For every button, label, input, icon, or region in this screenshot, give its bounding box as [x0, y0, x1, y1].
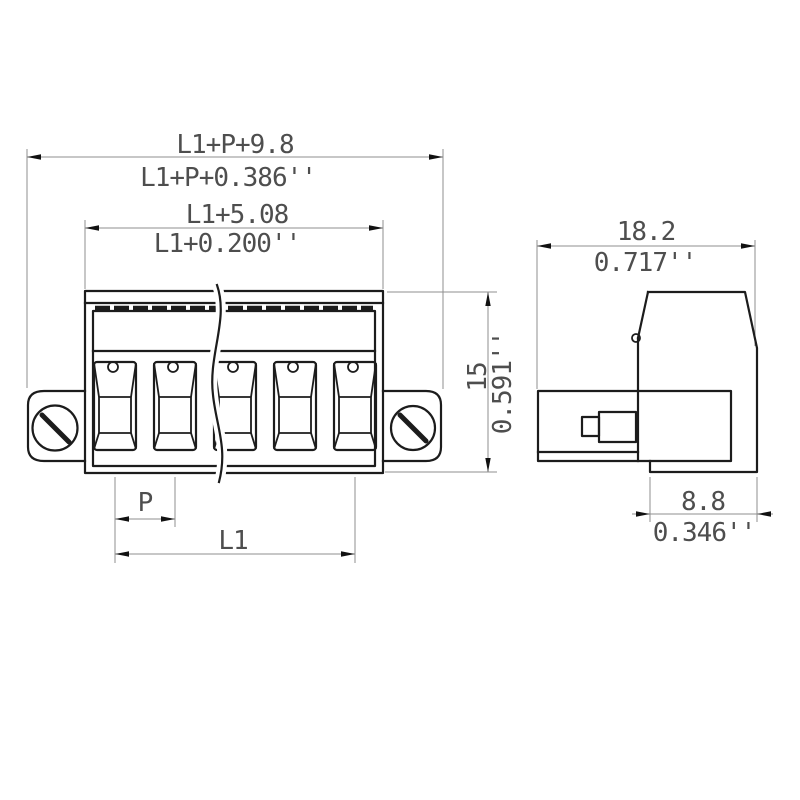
- side-body-outline: [648, 292, 757, 472]
- dim-depth-in: 0.717'': [594, 248, 697, 278]
- dim-depth-mm: 18.2: [617, 217, 676, 247]
- technical-drawing: L1+P+9.8 L1+P+0.386'' L1+5.08 L1+0.200''…: [0, 0, 800, 800]
- terminal-1: [94, 362, 136, 450]
- dim-overall-width-mm: L1+P+9.8: [176, 130, 293, 160]
- housing-outline: [85, 291, 383, 473]
- terminal-2: [154, 362, 196, 450]
- dim-foot-depth-in: 0.346'': [653, 518, 756, 548]
- dim-housing-width-mm: L1+5.08: [186, 200, 289, 230]
- dim-housing-width-in: L1+0.200'': [154, 229, 301, 259]
- dim-foot-depth-mm: 8.8: [681, 487, 725, 517]
- dim-length-label: L1: [218, 526, 247, 556]
- dim-pitch-label: P: [138, 488, 153, 518]
- terminal-5: [334, 362, 376, 450]
- side-view: [538, 292, 757, 472]
- dim-overall-width-in: L1+P+0.386'': [140, 163, 316, 193]
- front-view: [28, 285, 441, 482]
- pin-step-outer: [599, 412, 636, 442]
- dim-height-in: 0.591'': [488, 332, 518, 435]
- pin-step-inner: [582, 417, 599, 436]
- terminal-4: [274, 362, 316, 450]
- plug-block: [538, 391, 731, 461]
- dimension-labels: L1+P+9.8 L1+P+0.386'' L1+5.08 L1+0.200''…: [138, 130, 756, 556]
